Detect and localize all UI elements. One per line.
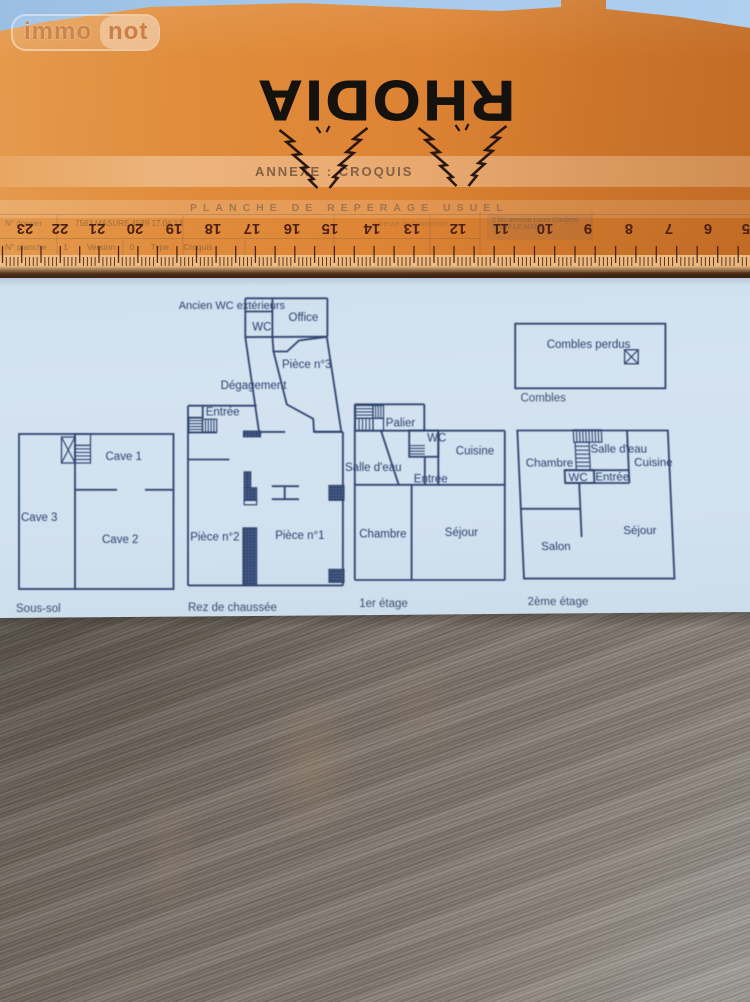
svg-text:22: 22 xyxy=(52,220,69,237)
svg-text:Entrée: Entrée xyxy=(414,474,448,486)
svg-text:Cave 3: Cave 3 xyxy=(21,512,57,524)
svg-text:6: 6 xyxy=(704,220,712,237)
svg-text:Cave 2: Cave 2 xyxy=(102,534,138,546)
svg-text:16: 16 xyxy=(284,220,301,237)
svg-text:Combles perdus: Combles perdus xyxy=(547,339,631,351)
svg-text:Cuisine: Cuisine xyxy=(634,457,673,469)
svg-text:Dégagement: Dégagement xyxy=(221,380,288,392)
svg-text:11: 11 xyxy=(493,220,509,237)
svg-text:23: 23 xyxy=(17,220,34,237)
svg-text:Salon: Salon xyxy=(541,541,571,553)
svg-text:Pièce n°3: Pièce n°3 xyxy=(282,359,331,371)
svg-text:Séjour: Séjour xyxy=(623,525,657,537)
svg-text:Ancien WC extérieurs: Ancien WC extérieurs xyxy=(179,300,286,312)
svg-text:Salle d'eau: Salle d'eau xyxy=(345,462,402,474)
svg-text:9: 9 xyxy=(584,220,592,237)
svg-text:5: 5 xyxy=(742,220,750,237)
svg-text:Pièce n°2: Pièce n°2 xyxy=(190,532,239,544)
svg-text:Palier: Palier xyxy=(386,418,416,430)
svg-text:WC: WC xyxy=(427,433,446,445)
svg-text:Entrée: Entrée xyxy=(206,407,240,419)
svg-text:17: 17 xyxy=(244,220,261,237)
svg-text:Cuisine: Cuisine xyxy=(456,446,494,458)
svg-text:Sous-sol: Sous-sol xyxy=(16,603,61,615)
svg-text:2ème étage: 2ème étage xyxy=(527,596,588,608)
svg-text:8: 8 xyxy=(625,220,633,237)
svg-text:Pièce n°1: Pièce n°1 xyxy=(275,530,324,542)
svg-text:Rez de chaussée: Rez de chaussée xyxy=(188,602,277,614)
svg-text:21: 21 xyxy=(89,220,106,237)
svg-text:Entrée: Entrée xyxy=(595,472,629,484)
svg-text:7: 7 xyxy=(665,220,673,237)
svg-text:WC: WC xyxy=(252,322,271,334)
svg-text:1er étage: 1er étage xyxy=(359,598,408,610)
svg-text:Séjour: Séjour xyxy=(445,527,478,539)
svg-text:Cave 1: Cave 1 xyxy=(106,451,142,463)
svg-text:20: 20 xyxy=(127,220,144,237)
svg-text:Salle d'eau: Salle d'eau xyxy=(590,444,647,456)
svg-text:Combles: Combles xyxy=(521,393,567,405)
svg-text:12: 12 xyxy=(450,220,467,237)
svg-text:15: 15 xyxy=(322,220,339,237)
svg-text:14: 14 xyxy=(363,220,380,237)
svg-text:Office: Office xyxy=(289,312,319,324)
svg-text:Chambre: Chambre xyxy=(526,458,574,470)
svg-text:Chambre: Chambre xyxy=(359,529,406,541)
svg-text:13: 13 xyxy=(404,220,421,237)
svg-text:18: 18 xyxy=(205,220,222,237)
svg-text:10: 10 xyxy=(537,220,554,237)
svg-text:19: 19 xyxy=(166,220,183,237)
